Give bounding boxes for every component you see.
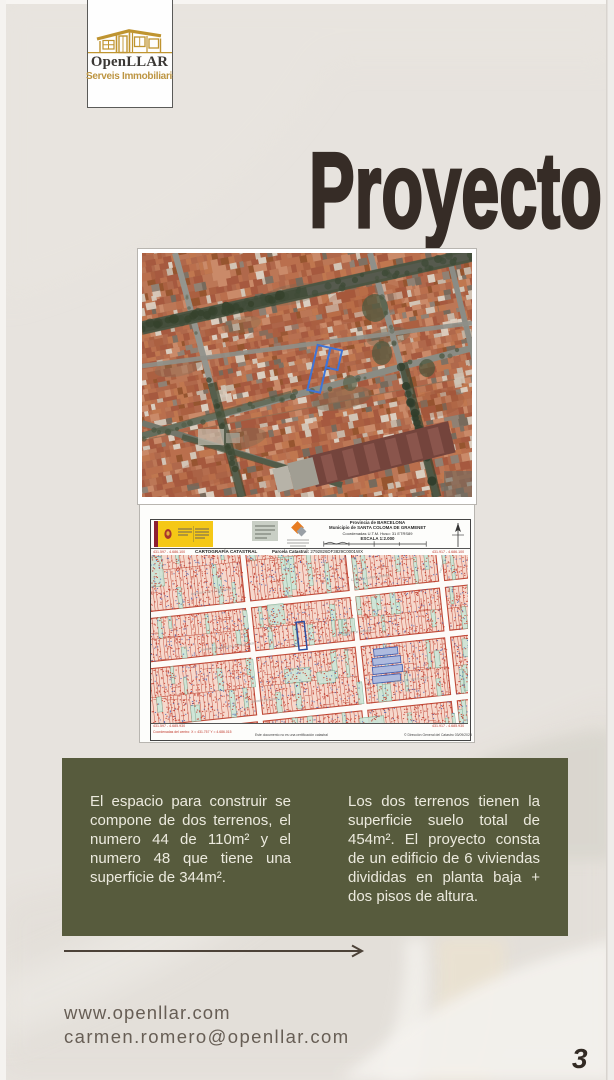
svg-text:Proyecto: Proyecto — [309, 130, 602, 250]
